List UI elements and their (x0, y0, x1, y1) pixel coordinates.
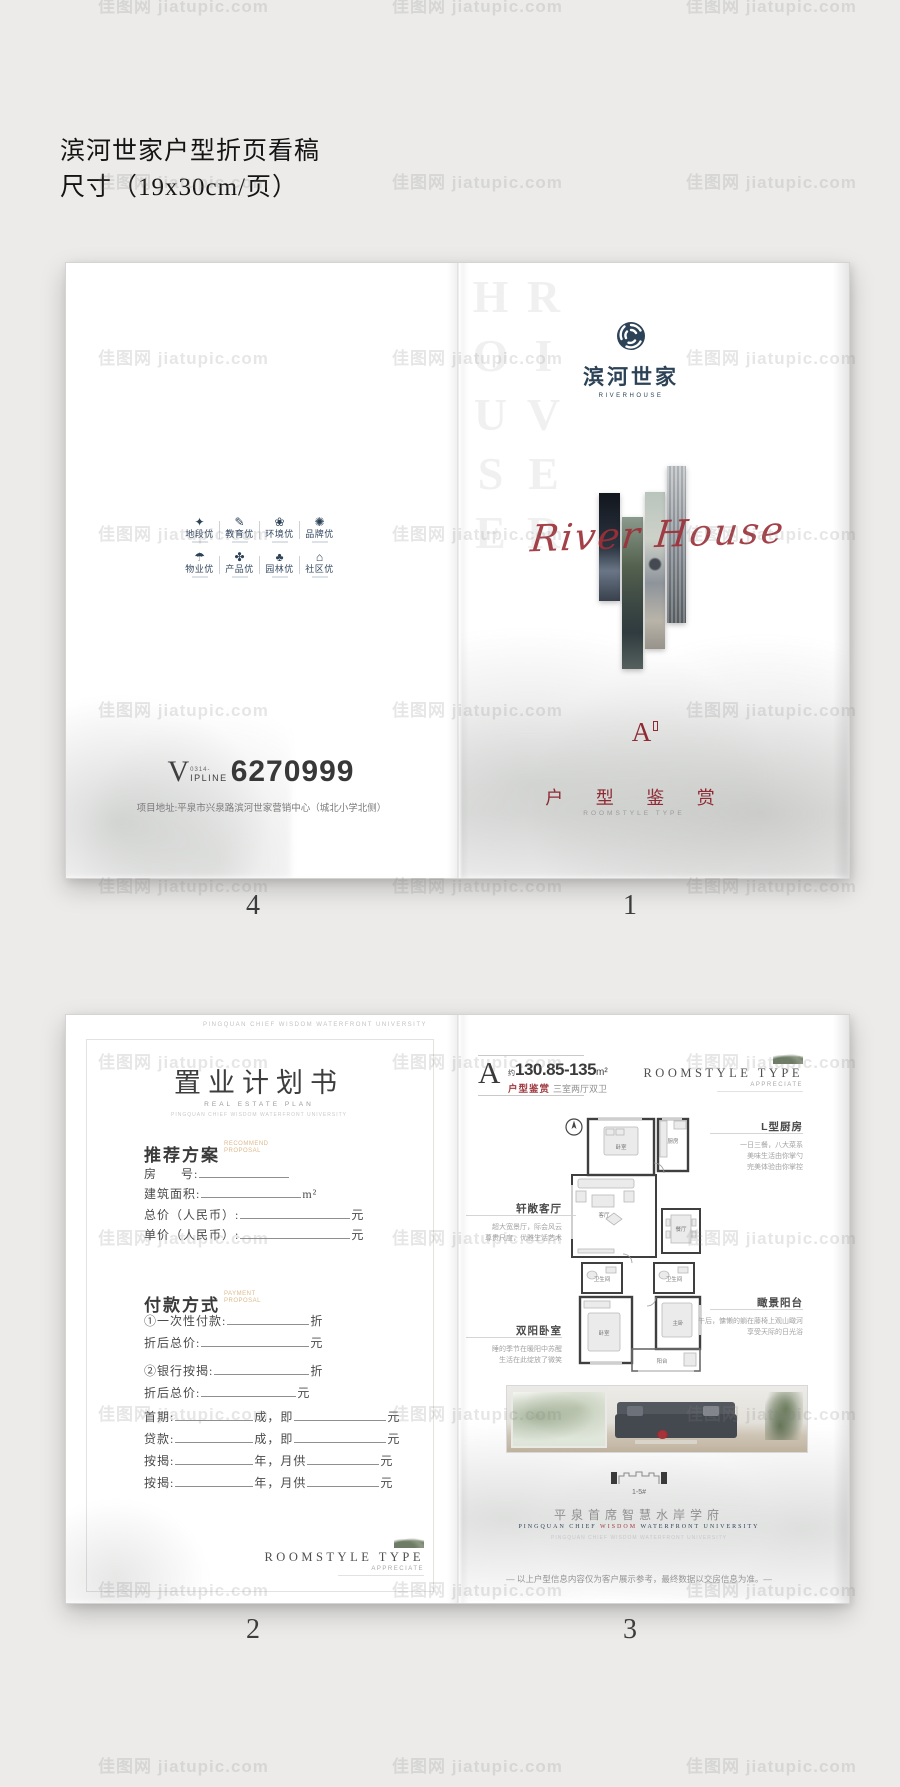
project-address: 项目地址:平泉市兴泉路滨河世家营销中心（城北小学北侧） (66, 800, 457, 814)
room-label: 主卧 (672, 1319, 684, 1327)
section-heading-text: 推荐方案 (144, 1146, 220, 1165)
form-blank-line (201, 1186, 301, 1198)
proof-caption-line1: 滨河世家户型折页看稿 (60, 134, 320, 170)
annotation-block-left: 双阳卧室睡的季节在暖阳中苏醒生活在此绽放了微笑 (466, 1323, 562, 1366)
page-number-2: 2 (223, 1614, 283, 1646)
annotation-line: 睡的季节在暖阳中苏醒 (466, 1344, 562, 1355)
brand-name-cn: 滨河世家 (458, 361, 804, 391)
shrub-icon (773, 1053, 803, 1064)
feature-underline (312, 576, 328, 578)
feature-underline (192, 576, 208, 578)
category-red: 户型鉴赏 (508, 1084, 550, 1095)
watermark-text: 佳图网 jiatupic.com (686, 0, 857, 17)
type-letter: A (615, 717, 675, 748)
form-label: 元 (351, 1228, 364, 1242)
page2-title: 置业计划书 (66, 1061, 452, 1100)
annotation-title: L型厨房 (693, 1119, 803, 1134)
photo-cushion (703, 1406, 719, 1416)
form-row: 按揭:年，月供元 (144, 1452, 393, 1469)
form-label: 元 (297, 1386, 310, 1400)
feature-item: ⌂社区优 (300, 550, 339, 578)
form-blank-line (199, 1166, 289, 1178)
room-label: 卧室 (615, 1143, 627, 1151)
form-label: 元 (351, 1208, 364, 1222)
annotation-line: 尊贵尺度，优雅生活艺术 (466, 1233, 562, 1244)
annotation-line: 享受天际的日光浴 (693, 1327, 803, 1338)
cover-title-en: ROOMSTYLE TYPE (458, 810, 810, 817)
form-label: 元 (310, 1336, 323, 1350)
watermark-text: 佳图网 jiatupic.com (686, 168, 857, 193)
page-2: PINGQUAN CHIEF WISDOM WATERFRONT UNIVERS… (66, 1015, 457, 1603)
annotation-lines: 一日三餐，八大菜系美味生活由你掌勺完美体验由你掌控 (693, 1140, 803, 1173)
corner-roomstyle-text: ROOMSTYLE TYPE (643, 1066, 803, 1081)
feature-underline (232, 541, 248, 543)
form-label: 折 (310, 1364, 323, 1378)
brand-icon: ✺ (300, 515, 339, 529)
watermark-text: 佳图网 jiatupic.com (392, 0, 563, 17)
page-1: RIVER HOUSE 滨河世家 RIVERHOUSE River House (458, 263, 849, 878)
form-row: 按揭:年，月供元 (144, 1474, 393, 1491)
feature-item: ❀环境优 (260, 515, 299, 543)
page-number-4: 4 (223, 890, 283, 922)
slogan-en-mid: WISDOM (600, 1524, 637, 1530)
feature-item: ♣园林优 (260, 550, 299, 578)
form-label: 成，即 (254, 1410, 293, 1424)
project-slogan-en: PINGQUAN CHIEF WISDOM WATERFRONT UNIVERS… (458, 1524, 820, 1530)
project-slogan: 平泉首席智慧水岸学府 (458, 1506, 820, 1523)
annotation-lines: 睡的季节在暖阳中苏醒生活在此绽放了微笑 (466, 1344, 562, 1366)
feature-underline (232, 576, 248, 578)
feature-underline (272, 576, 288, 578)
features-grid: ✦地段优✎教育优❀环境优✺品牌优☂物业优✤产品优♣园林优⌂社区优 (180, 515, 340, 585)
type-letter-glyph: A (632, 717, 652, 747)
feature-label: 环境优 (260, 529, 299, 540)
proof-caption: 滨河世家户型折页看稿 尺寸（19x30cm/页） (60, 134, 320, 206)
photo-cushion (627, 1406, 643, 1416)
form-label: 折后总价: (144, 1336, 200, 1350)
corner-divider (338, 1575, 424, 1576)
building-outline-icon (611, 1467, 667, 1487)
faint-trees-image (66, 1485, 226, 1603)
area-unit: m² (596, 1067, 608, 1078)
form-label: 按揭: (144, 1476, 174, 1490)
slogan-en-left: PINGQUAN CHIEF (518, 1524, 596, 1530)
feature-divider (259, 521, 260, 539)
annotation-lines: 超大宽景厅，际会风云尊贵尺度，优雅生活艺术 (466, 1222, 562, 1244)
form-row: ②银行按揭:折 (144, 1362, 323, 1379)
form-blank-line (227, 1313, 309, 1325)
fold-line (447, 263, 469, 878)
form-label: 元 (387, 1432, 400, 1446)
annotation-title: 双阳卧室 (466, 1323, 562, 1338)
garden-icon: ♣ (260, 550, 299, 564)
form-label: 建筑面积: (144, 1187, 200, 1201)
slogan-en-right: WATERFRONT UNIVERSITY (640, 1524, 759, 1530)
feature-label: 园林优 (260, 564, 299, 575)
photo-flowers (657, 1430, 668, 1439)
community-icon: ⌂ (300, 550, 339, 564)
vip-label: IPLINE (190, 773, 228, 783)
form-blank-line (201, 1385, 296, 1397)
page2-subtitle: REAL ESTATE PLAN (66, 1101, 452, 1108)
form-blank-line (175, 1475, 253, 1487)
location-icon: ✦ (180, 515, 219, 529)
corner-roomstyle-text: ROOMSTYLE TYPE (264, 1550, 424, 1565)
feature-divider (219, 556, 220, 574)
feature-item: ✺品牌优 (300, 515, 339, 543)
page-3: A 约130.85-135m² 户型鉴赏三室两厅双卫 ROOMSTYLE TYP… (458, 1015, 849, 1603)
brand-logo: 滨河世家 RIVERHOUSE (458, 319, 804, 399)
room-label: 餐厅 (675, 1225, 687, 1233)
feature-label: 物业优 (180, 564, 219, 575)
form-blank-line (175, 1409, 253, 1421)
form-blank-line (214, 1363, 309, 1375)
feature-item: ✦地段优 (180, 515, 219, 543)
section-heading-en: PAYMENT PROPOSAL (224, 1291, 272, 1304)
form-blank-line (307, 1453, 379, 1465)
feature-divider (219, 521, 220, 539)
annotation-lines: 午后，慵懒的躺在藤椅上观山瞰河享受天际的日光浴 (693, 1316, 803, 1338)
proof-caption-line2: 尺寸（19x30cm/页） (60, 170, 320, 206)
corner-divider (717, 1091, 803, 1092)
annotation-line: 生活在此绽放了微笑 (466, 1355, 562, 1366)
shrub-icon (394, 1537, 424, 1548)
page3-corner-logo: ROOMSTYLE TYPE APPRECIATE (643, 1053, 803, 1092)
form-label: 贷款: (144, 1432, 174, 1446)
cover-title-cn: 户 型 鉴 赏 (458, 784, 816, 810)
form-label: 按揭: (144, 1454, 174, 1468)
form-blank-line (307, 1475, 379, 1487)
slogan-micro-text: PINGQUAN CHIEF WISDOM WATERFRONT UNIVERS… (458, 1535, 820, 1541)
form-label: m² (302, 1187, 317, 1201)
education-icon: ✎ (220, 515, 259, 529)
annotation-line: 一日三餐，八大菜系 (693, 1140, 803, 1151)
form-blank-line (175, 1431, 253, 1443)
form-label: 折后总价: (144, 1386, 200, 1400)
annotation-block-left: 轩敞客厅超大宽景厅，际会风云尊贵尺度，优雅生活艺术 (466, 1201, 562, 1244)
vip-line: V0314-IPLINE6270999 (141, 755, 381, 789)
page2-subtitle-micro: PINGQUAN CHIEF WISDOM WATERFRONT UNIVERS… (66, 1112, 452, 1118)
feature-item: ✎教育优 (220, 515, 259, 543)
area-value: 130.85-135 (515, 1060, 596, 1079)
spread-1-sheet: ✦地段优✎教育优❀环境优✺品牌优☂物业优✤产品优♣园林优⌂社区优 V0314-I… (65, 262, 850, 879)
annotation-line: 完美体验由你掌控 (693, 1162, 803, 1173)
interior-photo (506, 1385, 808, 1453)
watermark-text: 佳图网 jiatupic.com (392, 168, 563, 193)
photo-plant (765, 1392, 803, 1440)
form-blank-line (201, 1335, 309, 1347)
form-label: 元 (380, 1454, 393, 1468)
section-heading: 推荐方案RECOMMEND PROPOSAL (144, 1141, 272, 1166)
feature-underline (272, 541, 288, 543)
feature-underline (192, 541, 208, 543)
form-label: 号: (181, 1167, 198, 1181)
watermark-text: 佳图网 jiatupic.com (686, 1752, 857, 1777)
room-label: 卫生间 (594, 1275, 611, 1283)
watermark-text: 佳图网 jiatupic.com (98, 0, 269, 17)
form-blank-line (175, 1453, 253, 1465)
form-row: 首期:成，即元 (144, 1408, 400, 1425)
feature-label: 地段优 (180, 529, 219, 540)
feature-label: 产品优 (220, 564, 259, 575)
corner-appreciate-text: APPRECIATE (264, 1566, 424, 1572)
environment-icon: ❀ (260, 515, 299, 529)
watermark-text: 佳图网 jiatupic.com (98, 1752, 269, 1777)
feature-divider (299, 556, 300, 574)
annotation-title: 瞰景阳台 (693, 1295, 803, 1310)
feature-item: ☂物业优 (180, 550, 219, 578)
sheet-edge-shadow (833, 1015, 849, 1603)
type-letter-mark (653, 721, 658, 731)
form-row: 折后总价:元 (144, 1334, 323, 1351)
form-row: 总价（人民币）:元 (144, 1206, 364, 1223)
form-blank-line (294, 1431, 386, 1443)
spread-2-sheet: PINGQUAN CHIEF WISDOM WATERFRONT UNIVERS… (65, 1014, 850, 1604)
vip-stack: 0314-IPLINE (190, 767, 228, 783)
annotation-line: 超大宽景厅，际会风云 (466, 1222, 562, 1233)
form-blank-line (240, 1227, 350, 1239)
form-label: 年，月供 (254, 1454, 306, 1468)
feature-label: 社区优 (300, 564, 339, 575)
form-label: 房 (144, 1167, 157, 1181)
annotation-block-right: L型厨房一日三餐，八大菜系美味生活由你掌勺完美体验由你掌控 (693, 1119, 803, 1173)
form-label: 元 (380, 1476, 393, 1490)
form-label: ①一次性付款: (144, 1314, 226, 1328)
form-label: 元 (387, 1410, 400, 1424)
page2-top-caption: PINGQUAN CHIEF WISDOM WATERFRONT UNIVERS… (203, 1022, 427, 1028)
photo-table (635, 1440, 697, 1444)
room-label: 厨房 (667, 1137, 679, 1145)
form-label: 折 (310, 1314, 323, 1328)
vip-number: 6270999 (231, 755, 355, 788)
form-label: 年，月供 (254, 1476, 306, 1490)
product-icon: ✤ (220, 550, 259, 564)
brand-emblem-icon (614, 319, 648, 353)
form-row: 房号: (144, 1165, 290, 1182)
form-row: 贷款:成，即元 (144, 1430, 400, 1447)
form-row: 单价（人民币）:元 (144, 1226, 364, 1243)
photo-window (511, 1390, 607, 1448)
section-heading-en: RECOMMEND PROPOSAL (224, 1141, 272, 1154)
form-label: 总价（人民币）: (144, 1208, 239, 1222)
annotation-line: 午后，慵懒的躺在藤椅上观山瞰河 (693, 1316, 803, 1327)
feature-divider (259, 556, 260, 574)
feature-item: ✤产品优 (220, 550, 259, 578)
form-row: 折后总价:元 (144, 1384, 310, 1401)
room-label: 阳台 (656, 1357, 668, 1365)
brand-name-en: RIVERHOUSE (458, 393, 804, 399)
page-4: ✦地段优✎教育优❀环境优✺品牌优☂物业优✤产品优♣园林优⌂社区优 V0314-I… (66, 263, 457, 878)
photo-sofa (615, 1414, 737, 1438)
feature-label: 品牌优 (300, 529, 339, 540)
plan-furniture (576, 1121, 696, 1366)
feature-underline (312, 541, 328, 543)
page-number-3: 3 (600, 1614, 660, 1646)
header-rule-bottom (478, 1095, 584, 1096)
watermark-text: 佳图网 jiatupic.com (392, 1752, 563, 1777)
corner-appreciate-text: APPRECIATE (643, 1082, 803, 1088)
feature-divider (299, 521, 300, 539)
plan-area: 约130.85-135m² (508, 1060, 608, 1080)
page-number-1: 1 (600, 890, 660, 922)
form-row: 建筑面积:m² (144, 1185, 317, 1202)
property-icon: ☂ (180, 550, 219, 564)
room-label: 客厅 (598, 1211, 610, 1219)
feature-label: 教育优 (220, 529, 259, 540)
disclaimer-text: — 以上户型信息内容仅为客户展示参考，最终数据以交房信息为准。— (458, 1573, 820, 1585)
sheet-edge-shadow (833, 263, 849, 878)
category-gray: 三室两厅双卫 (553, 1084, 607, 1094)
annotation-block-right: 瞰景阳台午后，慵懒的躺在藤椅上观山瞰河享受天际的日光浴 (693, 1295, 803, 1338)
form-spacer (157, 1177, 181, 1178)
room-label: 卫生间 (666, 1275, 683, 1283)
annotation-title: 轩敞客厅 (466, 1201, 562, 1216)
building-label: 1-5# (578, 1489, 700, 1496)
compass-icon (566, 1119, 582, 1135)
form-label: ②银行按揭: (144, 1364, 213, 1378)
annotation-line: 美味生活由你掌勺 (693, 1151, 803, 1162)
page2-corner-logo: ROOMSTYLE TYPE APPRECIATE (264, 1537, 424, 1576)
vip-v: V (168, 755, 190, 788)
form-blank-line (240, 1207, 350, 1219)
fold-line (447, 1015, 469, 1603)
form-label: 首期: (144, 1410, 174, 1424)
form-label: 单价（人民币）: (144, 1228, 239, 1242)
form-label: 成，即 (254, 1432, 293, 1446)
form-blank-line (294, 1409, 386, 1421)
plan-type-letter: A (478, 1057, 500, 1088)
room-label: 卧室 (598, 1329, 610, 1337)
approx-label: 约 (508, 1070, 515, 1077)
form-row: ①一次性付款:折 (144, 1312, 323, 1329)
